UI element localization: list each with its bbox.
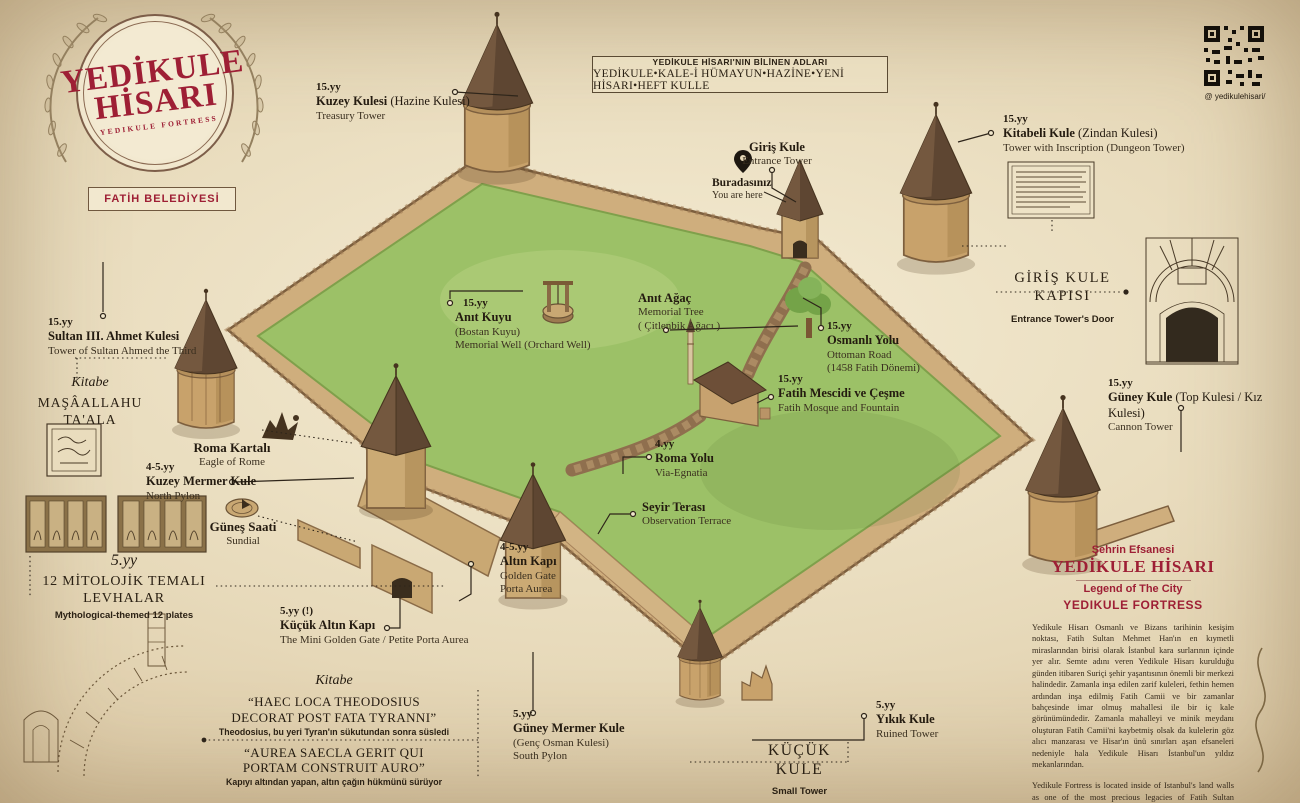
entrance-door-sketch	[1146, 238, 1238, 364]
callout-anit-agac: Anıt Ağaç Memorial Tree ( Çitlenbik Ağac…	[638, 291, 720, 333]
known-names-list: YEDİKULE•KALE-İ HÜMAYUN•HAZİNE•YENİ HİSA…	[593, 68, 887, 92]
legend-paragraph-en: Yedikule Fortress is located inside of I…	[1032, 780, 1234, 803]
gate-side-wall	[298, 520, 360, 568]
callout-giris-kule-kapisi: GİRİŞ KULE KAPISI Entrance Tower's Door	[995, 270, 1130, 326]
gate-plan-diagram	[24, 614, 188, 776]
logo-badge: YEDİKULE HİSARI YEDIKULE FORTRESS	[76, 14, 234, 172]
tower-kitabeli-kule	[897, 102, 975, 275]
callout-kitabe-haec: Kitabe “HAEC LOCA THEODOSIUS DECORAT POS…	[188, 672, 480, 788]
callout-fatih-mescidi: 15.yy Fatih Mescidi ve Çeşme Fatih Mosqu…	[778, 373, 905, 415]
mini-gate-arch	[392, 578, 412, 598]
legend-paragraph-tr: Yedikule Hisarı Osmanlı ve Bizans tarihi…	[1032, 622, 1234, 770]
callout-guney-kule: 15.yy Güney Kule (Top Kulesi / Kız Kules…	[1108, 377, 1300, 434]
fountain	[760, 408, 770, 419]
eagle-illustration	[262, 412, 299, 440]
callout-seyir-terasi: Seyir Terası Observation Terrace	[642, 500, 731, 529]
legend-kicker-en: Legend of The City	[1076, 580, 1191, 595]
lawn-shade	[700, 410, 960, 530]
callout-guney-mermer: 5.yy Güney Mermer Kule (Genç Osman Kules…	[513, 708, 625, 763]
legend-kicker-tr: Şehrin Efsanesi	[1032, 544, 1234, 556]
callout-yikik-kule: 5.yy Yıkık Kule Ruined Tower	[876, 699, 938, 741]
callout-kucuk-kule: KÜÇÜK KULE Small Tower	[742, 742, 857, 797]
callout-buradasiniz: Buradasınız You are here	[712, 176, 771, 202]
callout-levhalar: 5.yy 12 MİTOLOJİK TEMALI LEVHALAR Mythol…	[18, 551, 230, 621]
arabic-inscription-plaque	[47, 424, 101, 476]
callout-kucuk-altin-kapi: 5.yy (!) Küçük Altın Kapı The Mini Golde…	[280, 605, 468, 647]
legend-flourish	[1256, 648, 1265, 772]
latin-inscription-plaque	[1008, 162, 1094, 218]
legend-block: Şehrin Efsanesi YEDİKULE HİSARI Legend o…	[1032, 544, 1234, 803]
municipality-banner: FATİH BELEDİYESİ	[88, 187, 236, 211]
callout-osmanli-yolu: 15.yy Osmanlı Yolu Ottoman Road (1458 Fa…	[827, 320, 920, 375]
mythological-plates	[26, 496, 206, 552]
known-names-heading: YEDİKULE HİSARI'NIN BİLİNEN ADLARI	[653, 57, 828, 67]
callout-anit-kuyu: 15.yy Anıt Kuyu (Bostan Kuyu) Memorial W…	[455, 297, 591, 352]
callout-altin-kapi: 4-5.yy Altın Kapı Golden Gate Porta Aure…	[500, 541, 557, 596]
poster-canvas: YEDİKULE HİSARI YEDIKULE FORTRESS FATİH …	[0, 0, 1300, 803]
callout-giris-kule: Giriş Kule Entrance Tower	[722, 140, 832, 169]
callout-roma-yolu: 4.yy Roma Yolu Via-Egnatia	[655, 438, 714, 480]
callout-gunes-saati: Güneş Saati Sundial	[198, 519, 288, 548]
callout-kuzey-mermer: 4-5.yy Kuzey Mermer Kule North Pylon	[146, 461, 256, 503]
tower-sultan-ahmet	[172, 289, 240, 439]
legend-title-tr: YEDİKULE HİSARI	[1032, 557, 1234, 577]
known-names-box: YEDİKULE HİSARI'NIN BİLİNEN ADLARI YEDİK…	[592, 56, 888, 93]
callout-kuzey-kulesi: 15.yy Kuzey Kulesi (Hazine Kulesi) Treas…	[316, 81, 470, 123]
qr-code	[1204, 26, 1264, 86]
callout-kitabeli-kule: 15.yy Kitabeli Kule (Zindan Kulesi) Towe…	[1003, 113, 1185, 155]
legend-title-en: YEDIKULE FORTRESS	[1032, 598, 1234, 612]
callout-sultan-ahmet: 15.yy Sultan III. Ahmet Kulesi Tower of …	[48, 316, 196, 358]
tower-giris-kule	[777, 160, 823, 258]
callout-kitabe-masaallahu: Kitabe MAŞÂALLAHU TA'ALA	[10, 374, 170, 428]
social-handle: @ yedikulehisari/	[1190, 92, 1280, 101]
tower-yikik-kule-ruins	[742, 666, 772, 700]
